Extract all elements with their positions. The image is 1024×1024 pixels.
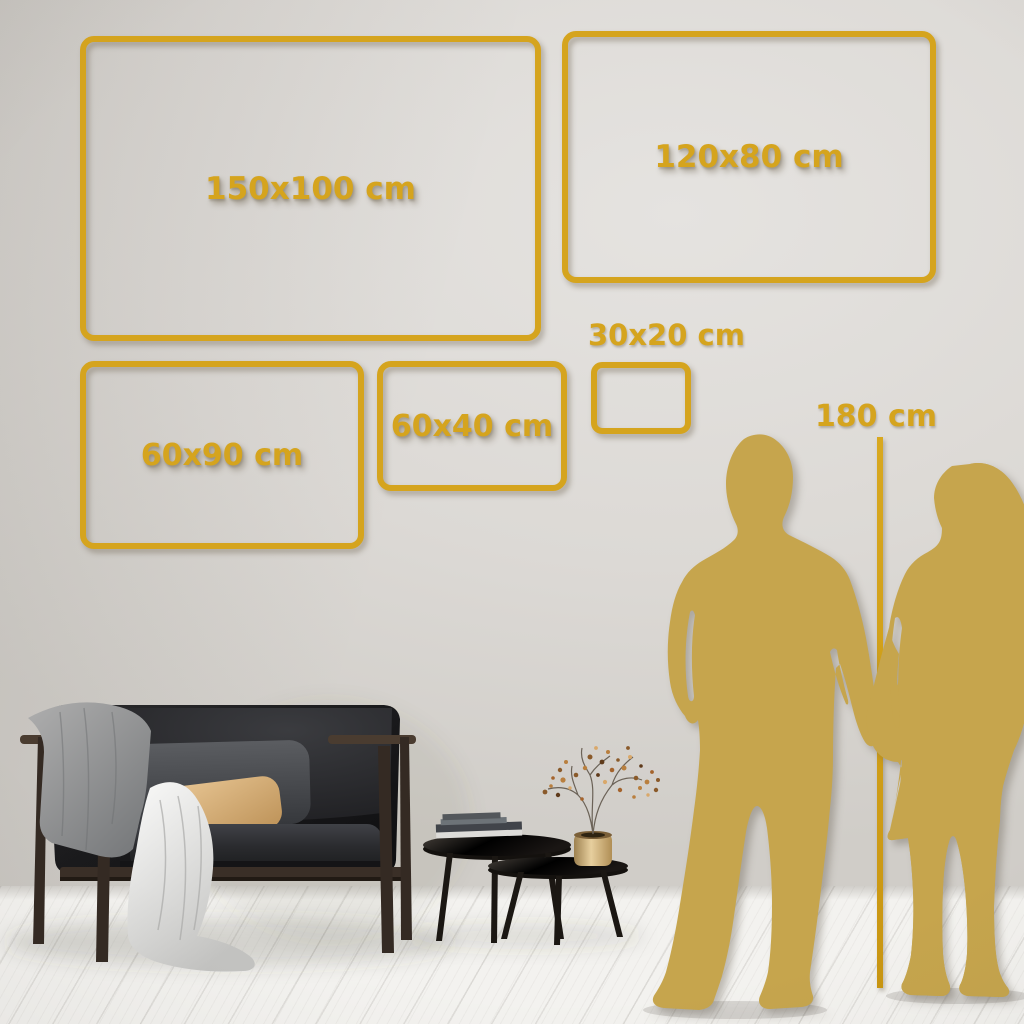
wood-plank-floor xyxy=(0,886,1024,1024)
size-label-120x80: 120x80 cm xyxy=(654,139,843,175)
size-frame-60x40: 60x40 cm xyxy=(377,361,567,491)
height-measure-line xyxy=(877,437,883,988)
size-frame-150x100: 150x100 cm xyxy=(80,36,541,341)
height-measure-label: 180 cm xyxy=(796,399,956,434)
size-label-60x90: 60x90 cm xyxy=(141,438,303,473)
size-guide-scene: 150x100 cm 120x80 cm 60x90 cm 60x40 cm 3… xyxy=(0,0,1024,1024)
size-label-150x100: 150x100 cm xyxy=(205,171,416,207)
size-label-60x40: 60x40 cm xyxy=(391,409,553,444)
size-frame-60x90: 60x90 cm xyxy=(80,361,364,549)
size-frame-120x80: 120x80 cm xyxy=(562,31,936,283)
size-label-30x20: 30x20 cm xyxy=(588,318,745,352)
size-frame-30x20 xyxy=(591,362,691,434)
